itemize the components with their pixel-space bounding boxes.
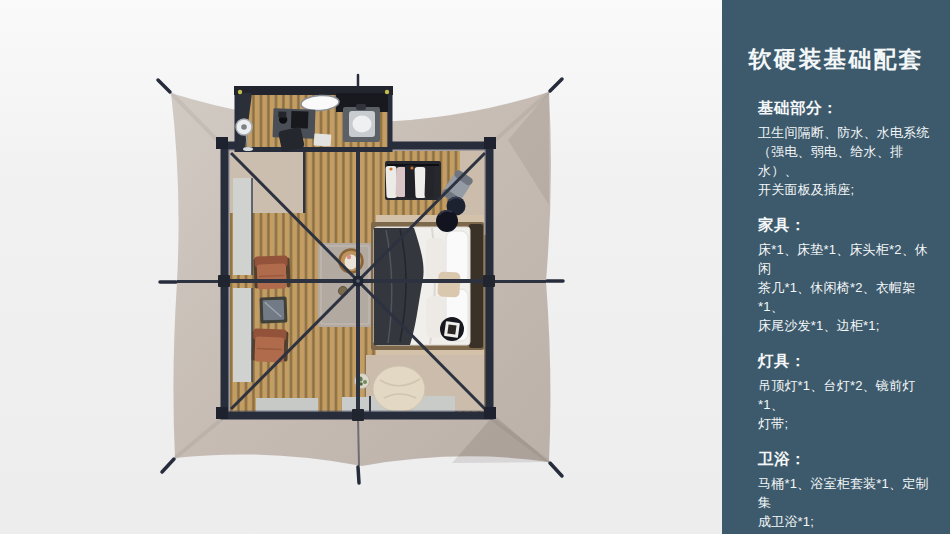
garment (424, 166, 434, 198)
section-furniture: 家具： 床*1、床垫*1、床头柜*2、休闲 茶几*1、休闲椅*2、衣帽架*1、 … (758, 215, 938, 335)
faucet (356, 104, 366, 110)
corner-light (385, 90, 389, 94)
book (444, 321, 460, 338)
round-stool (436, 210, 458, 232)
stake-bottom-mid (358, 467, 359, 483)
render-area (0, 0, 722, 534)
section-basics: 基础部分： 卫生间隔断、防水、水电系统 （强电、弱电、给水、排水）、 开关面板及… (758, 98, 938, 199)
hanger-hook (389, 167, 392, 170)
clothes-rack (385, 161, 441, 200)
bath-mat (314, 133, 332, 146)
info-panel: 软硬装基础配套 基础部分： 卫生间隔断、防水、水电系统 （强电、弱电、给水、排水… (722, 0, 950, 534)
section-body: 吊顶灯*1、台灯*2、镜前灯*1、 灯带; (758, 376, 938, 433)
stake-bottom-right (550, 463, 562, 476)
section-bathroom: 卫浴： 马桶*1、浴室柜套装*1、定制集 成卫浴*1; (758, 449, 938, 531)
stake-top-left (158, 80, 170, 92)
garment (405, 165, 416, 198)
section-heading: 基础部分： (758, 98, 938, 119)
floor-mat (256, 398, 318, 412)
section-body: 马桶*1、浴室柜套装*1、定制集 成卫浴*1; (758, 474, 938, 531)
section-body: 床*1、床垫*1、床头柜*2、休闲 茶几*1、休闲椅*2、衣帽架*1、 床尾沙发… (758, 240, 938, 335)
headboard (469, 224, 483, 348)
corridor-wall (303, 151, 306, 213)
panel-title: 软硬装基础配套 (722, 0, 950, 74)
corner-light (238, 90, 242, 94)
section-heading: 卫浴： (758, 449, 938, 470)
black-side-table (440, 317, 464, 341)
beanbag-pouf (373, 366, 425, 412)
stake-top-right (550, 79, 562, 91)
glass-side-table (260, 297, 288, 324)
section-lighting: 灯具： 吊顶灯*1、台灯*2、镜前灯*1、 灯带; (758, 351, 938, 433)
section-body: 卫生间隔断、防水、水电系统 （强电、弱电、给水、排水）、 开关面板及插座; (758, 123, 938, 199)
sink-unit (343, 104, 380, 142)
hanger-hook (410, 166, 413, 169)
window-panel (233, 288, 252, 382)
section-heading: 灯具： (758, 351, 938, 372)
garment (395, 167, 406, 197)
stake-bottom-left (162, 459, 174, 472)
tent-floorplan-render (0, 0, 722, 534)
bed (371, 222, 484, 350)
panel-sections: 基础部分： 卫生间隔断、防水、水电系统 （强电、弱电、给水、排水）、 开关面板及… (722, 98, 950, 534)
window-panel (233, 178, 252, 275)
section-heading: 家具： (758, 215, 938, 236)
bathroom-box (234, 86, 393, 152)
lounge-chair-1 (253, 255, 290, 289)
